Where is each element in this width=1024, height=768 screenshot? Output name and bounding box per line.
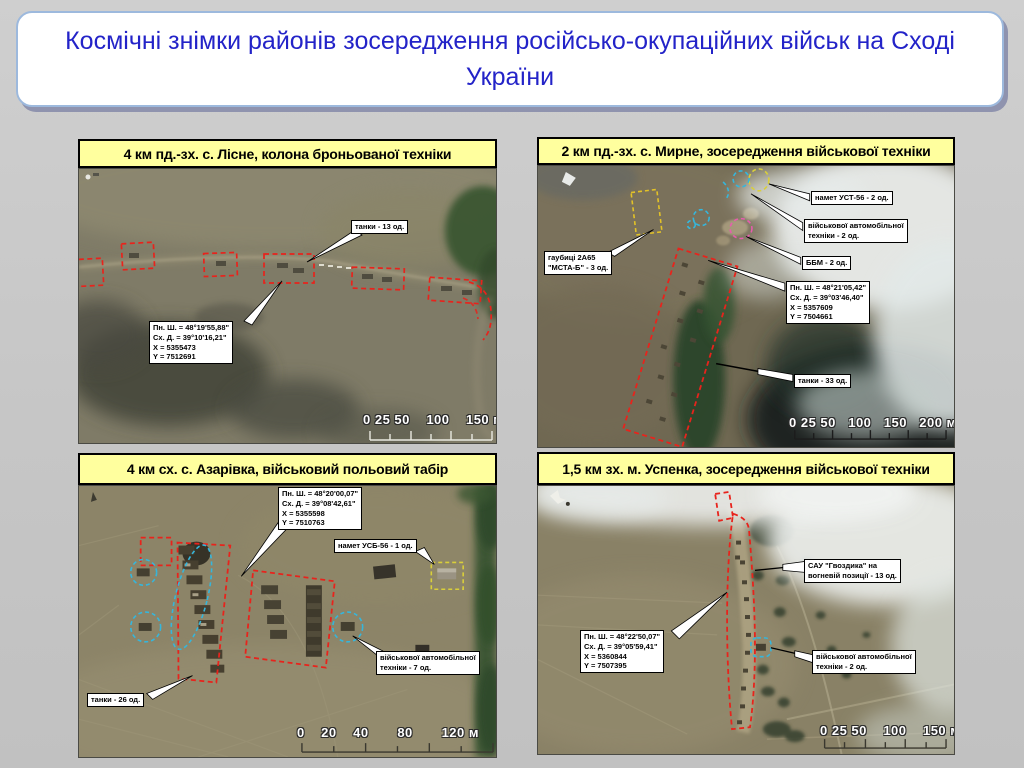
callout-sau-count: САУ "Гвоздика" на вогневій позиції - 13 … bbox=[804, 559, 901, 583]
callout-line: гаубиці 2А65 bbox=[548, 253, 608, 263]
callout-text: намет УСБ-56 - 1 од. bbox=[338, 541, 413, 550]
panel-lisne-satellite-image: танки - 13 од. Пн. Ш. = 48°19'55,88" Сх.… bbox=[78, 168, 497, 444]
scale-bar: 0 25 50 100 150 м bbox=[363, 412, 497, 427]
scale-bar: 0 25 50 100 150 м bbox=[820, 723, 955, 738]
callout-text: танки - 26 од. bbox=[91, 695, 140, 704]
terrain bbox=[538, 166, 954, 447]
panel-lisne-caption: 4 км пд.-зх. с. Лісне, колона броньовано… bbox=[78, 139, 497, 168]
callout-tanks-count: танки - 26 од. bbox=[87, 693, 144, 707]
callout-line: військової автомобільної bbox=[808, 221, 904, 231]
callout-line: техніки - 2 од. bbox=[816, 662, 912, 672]
coordinate-line: Y = 7507395 bbox=[584, 661, 660, 671]
callout-line: "МСТА-Б" - 3 од. bbox=[548, 263, 608, 273]
callout-line: вогневій позиції - 13 од. bbox=[808, 571, 897, 581]
callout-text: ББМ - 2 од. bbox=[806, 258, 847, 267]
callout-line: техніки - 2 од. bbox=[808, 231, 904, 241]
panel-myrne: 2 км пд.-зх. с. Мирне, зосередження війс… bbox=[537, 137, 955, 448]
coordinate-line: X = 5355473 bbox=[153, 343, 229, 353]
callout-line: військової автомобільної bbox=[816, 652, 912, 662]
satellite-photo bbox=[538, 166, 954, 447]
satellite-photo bbox=[79, 169, 496, 443]
slide-title-box: Космічні знімки районів зосередження рос… bbox=[16, 11, 1004, 107]
panel-azarivka-caption: 4 км сх. с. Азарівка, військовий польови… bbox=[78, 453, 497, 485]
callout-tent-count: намет УСТ-56 - 2 од. bbox=[811, 191, 893, 205]
callout-bbm-count: ББМ - 2 од. bbox=[802, 256, 851, 270]
coordinate-line: Пн. Ш. = 48°19'55,88" bbox=[153, 323, 229, 333]
coordinate-line: Сх. Д. = 39°03'46,40" bbox=[790, 293, 866, 303]
callout-line: військової автомобільної bbox=[380, 653, 476, 663]
callout-tanks-count: танки - 33 од. bbox=[794, 374, 851, 388]
callout-text: танки - 13 од. bbox=[355, 222, 404, 231]
scale-bar: 0 20 40 80 120 м bbox=[297, 725, 479, 740]
slide-title: Космічні знімки районів зосередження рос… bbox=[18, 23, 1002, 96]
callout-auto-vehicles: військової автомобільної техніки - 7 од. bbox=[376, 651, 480, 675]
callout-coordinates: Пн. Ш. = 48°22'50,07" Сх. Д. = 39°05'59,… bbox=[580, 630, 664, 673]
panel-myrne-satellite-image: намет УСТ-56 - 2 од. військової автомобі… bbox=[537, 165, 955, 448]
terrain bbox=[538, 486, 954, 754]
coordinate-line: X = 5355598 bbox=[282, 509, 358, 519]
callout-howitzers: гаубиці 2А65 "МСТА-Б" - 3 од. bbox=[544, 251, 612, 275]
panel-uspenka-caption: 1,5 км зх. м. Успенка, зосередження війс… bbox=[537, 452, 955, 485]
satellite-photo bbox=[538, 486, 954, 754]
callout-auto-vehicles: військової автомобільної техніки - 2 од. bbox=[812, 650, 916, 674]
coordinate-line: Сх. Д. = 39°10'16,21" bbox=[153, 333, 229, 343]
coordinate-line: Пн. Ш. = 48°22'50,07" bbox=[584, 632, 660, 642]
coordinate-line: X = 5357609 bbox=[790, 303, 866, 313]
callout-coordinates: Пн. Ш. = 48°21'05,42" Сх. Д. = 39°03'46,… bbox=[786, 281, 870, 324]
callout-auto-vehicles: військової автомобільної техніки - 2 од. bbox=[804, 219, 908, 243]
coordinate-line: Сх. Д. = 39°05'59,41" bbox=[584, 642, 660, 652]
coordinate-line: Y = 7512691 bbox=[153, 352, 229, 362]
panel-azarivka-satellite-image: Пн. Ш. = 48°20'00,07" Сх. Д. = 39°08'42,… bbox=[78, 485, 497, 758]
callout-tent-count: намет УСБ-56 - 1 од. bbox=[334, 539, 417, 553]
coordinate-line: Пн. Ш. = 48°21'05,42" bbox=[790, 283, 866, 293]
panel-myrne-caption: 2 км пд.-зх. с. Мирне, зосередження війс… bbox=[537, 137, 955, 165]
terrain bbox=[79, 169, 496, 443]
callout-coordinates: Пн. Ш. = 48°20'00,07" Сх. Д. = 39°08'42,… bbox=[278, 487, 362, 530]
panel-uspenka: 1,5 км зх. м. Успенка, зосередження війс… bbox=[537, 452, 955, 755]
coordinate-line: Пн. Ш. = 48°20'00,07" bbox=[282, 489, 358, 499]
callout-text: намет УСТ-56 - 2 од. bbox=[815, 193, 889, 202]
callout-tanks-count: танки - 13 од. bbox=[351, 220, 408, 234]
coordinate-line: Y = 7510763 bbox=[282, 518, 358, 528]
panel-lisne: 4 км пд.-зх. с. Лісне, колона броньовано… bbox=[78, 139, 497, 444]
callout-coordinates: Пн. Ш. = 48°19'55,88" Сх. Д. = 39°10'16,… bbox=[149, 321, 233, 364]
coordinate-line: Сх. Д. = 39°08'42,61" bbox=[282, 499, 358, 509]
presentation-slide: Космічні знімки районів зосередження рос… bbox=[0, 0, 1024, 768]
scale-bar: 0 25 50 100 150 200 м bbox=[789, 415, 955, 430]
panel-azarivka: 4 км сх. с. Азарівка, військовий польови… bbox=[78, 453, 497, 758]
panel-uspenka-satellite-image: САУ "Гвоздика" на вогневій позиції - 13 … bbox=[537, 485, 955, 755]
callout-line: техніки - 7 од. bbox=[380, 663, 476, 673]
callout-text: танки - 33 од. bbox=[798, 376, 847, 385]
coordinate-line: X = 5360844 bbox=[584, 652, 660, 662]
coordinate-line: Y = 7504661 bbox=[790, 312, 866, 322]
callout-line: САУ "Гвоздика" на bbox=[808, 561, 897, 571]
